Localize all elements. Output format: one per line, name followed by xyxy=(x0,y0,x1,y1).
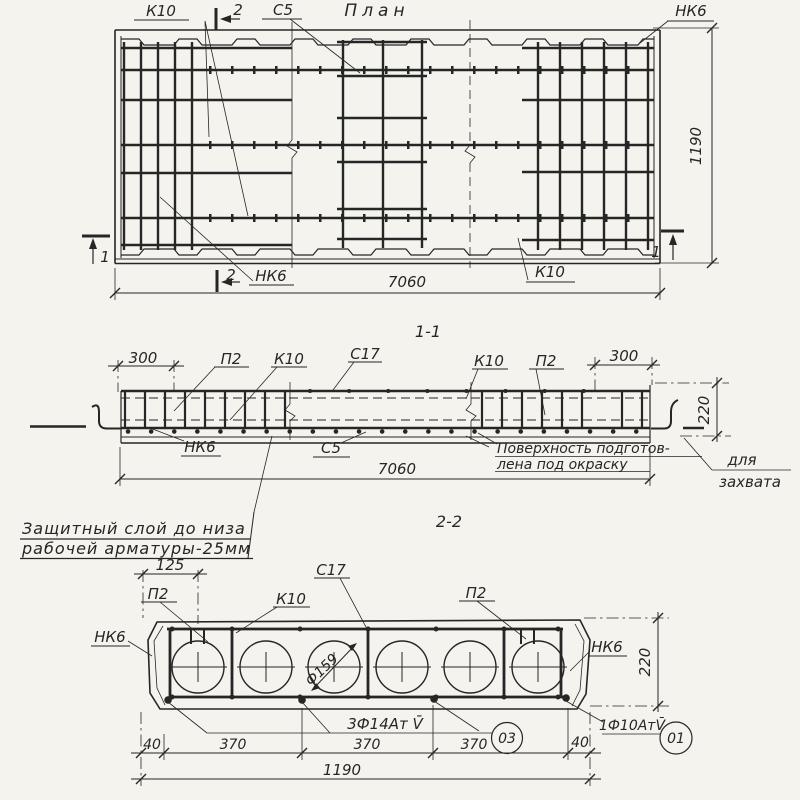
s11-left-lifting-hook xyxy=(92,405,121,428)
cover-note-line1: Защитный слой до низа xyxy=(22,519,246,538)
s11-note-surface-line1: Поверхность подготов- xyxy=(497,441,670,457)
s11-end-edges xyxy=(121,385,650,443)
s22-mesh-wire-dots xyxy=(172,629,558,697)
s22-dim-370-b: 370 xyxy=(354,737,381,753)
s22-bottom-bars-leaders xyxy=(168,701,479,733)
s22-dim-125: 125 xyxy=(156,556,185,574)
s22-label-c17: С17 xyxy=(316,561,346,579)
plan-cut1-left-arrowhead xyxy=(89,238,97,249)
plan-label-nk6-top: НК6 xyxy=(675,2,706,20)
s11-dim-300r: 300 xyxy=(610,347,639,365)
s22-internal-vertical-bars xyxy=(232,629,504,697)
cover-note-leader xyxy=(254,436,272,512)
s11-leader-k10-right xyxy=(466,369,478,399)
s22-dia-arrowhead-upper xyxy=(348,643,357,651)
s22-k10-mesh-frame xyxy=(167,629,566,697)
s11-dim-220: 220 xyxy=(695,396,713,425)
plan-dim-1190-extensions xyxy=(653,28,719,263)
s22-mark-03: 03 xyxy=(498,731,516,747)
plan-cut2-bottom-label: 2 xyxy=(226,266,236,284)
s11-note-grip-line1: для xyxy=(727,451,757,469)
s11-leader-p2-left xyxy=(174,367,215,411)
plan-cut1-right-arrowhead xyxy=(669,234,677,245)
s22-corner-bar-leader xyxy=(566,701,603,722)
plan-label-nk6-bottom: НК6 xyxy=(255,267,286,285)
s22-label-corner-bar: 1Ф10АтV̄ xyxy=(599,716,667,734)
s11-dim-7060: 7060 xyxy=(378,460,416,478)
s11-leader-k10-left xyxy=(230,367,277,420)
plan-cut1-right-label: 1 xyxy=(651,243,661,261)
s11-label-c17: С17 xyxy=(350,345,380,363)
s11-note-grip-line2: захвата xyxy=(719,473,781,491)
s22-leader-c17 xyxy=(340,578,366,627)
plan-label-c5: С5 xyxy=(273,1,293,19)
plan-view: План К10 2 С5 НК6 1 xyxy=(82,1,719,300)
blueprint-sheet: План К10 2 С5 НК6 1 xyxy=(0,0,800,800)
s11-right-mesh-verticals xyxy=(482,391,642,428)
s22-label-p2-left: П2 xyxy=(148,585,169,603)
s22-label-nk6-right: НК6 xyxy=(591,638,622,656)
section-2-2-title: 2-2 xyxy=(436,512,462,531)
plan-leader-k10-top xyxy=(205,21,248,216)
s11-label-p2-left: П2 xyxy=(221,350,242,368)
s22-dim-220: 220 xyxy=(636,648,654,677)
s11-right-lifting-hook xyxy=(651,400,678,429)
plan-title: План xyxy=(344,1,409,21)
plan-leader-c5 xyxy=(290,19,360,73)
s22-dim-370-a: 370 xyxy=(220,737,247,753)
s22-label-bottom-bars: 3Ф14Ат V̄ xyxy=(347,714,424,733)
s22-label-p2-right: П2 xyxy=(466,584,487,602)
s22-label-k10: К10 xyxy=(276,590,306,608)
s11-label-c5: С5 xyxy=(321,439,341,457)
section-1-1: 1-1 300 300 П2 К10 С17 К10 xyxy=(30,322,791,491)
s11-label-p2-right: П2 xyxy=(536,352,557,370)
plan-label-k10-top: К10 xyxy=(146,2,176,20)
s22-dim-370-c: 370 xyxy=(461,737,488,753)
s22-dim-40-right: 40 xyxy=(571,735,589,751)
s11-left-mesh-verticals xyxy=(125,391,285,428)
s11-note-surface-line2: лена под окраску xyxy=(496,457,628,473)
s22-leader-nk6-right xyxy=(570,652,589,671)
cover-note-line2: рабочей арматуры-25мм xyxy=(21,539,251,558)
s11-leader-c17 xyxy=(333,362,354,390)
plan-dim-7060: 7060 xyxy=(388,273,426,291)
s11-label-k10-left: К10 xyxy=(274,350,304,368)
s22-label-nk6-left: НК6 xyxy=(94,628,125,646)
s11-label-k10-right: К10 xyxy=(474,352,504,370)
s11-concrete-dashed-lines xyxy=(121,398,650,420)
s22-dim-220-extensions xyxy=(584,618,669,706)
s22-mark-01: 01 xyxy=(667,731,685,747)
plan-left-mesh-horizontal-bars xyxy=(121,48,292,245)
s11-label-nk6: НК6 xyxy=(184,438,215,456)
plan-label-k10-bottom: К10 xyxy=(535,263,565,281)
s11-note-grip-leader xyxy=(684,438,712,470)
s11-dim-300l: 300 xyxy=(129,349,158,367)
plan-cut1-left-label: 1 xyxy=(100,248,110,266)
s22-dim-40-left: 40 xyxy=(143,737,161,753)
plan-cut2-top-label: 2 xyxy=(233,1,243,19)
plan-dim-1190: 1190 xyxy=(687,127,705,165)
cover-note: Защитный слой до низа рабочей арматуры-2… xyxy=(20,436,272,559)
s22-dim-1190: 1190 xyxy=(323,761,361,779)
slab-drawing: План К10 2 С5 НК6 1 xyxy=(0,0,800,800)
s11-leader-nk6 xyxy=(150,428,184,441)
s22-p2-loop-legs xyxy=(191,629,534,644)
plan-bottom-chamfer-edge xyxy=(121,249,654,255)
section-1-1-title: 1-1 xyxy=(415,322,441,341)
plan-cut2-top-arrowhead xyxy=(220,15,231,23)
